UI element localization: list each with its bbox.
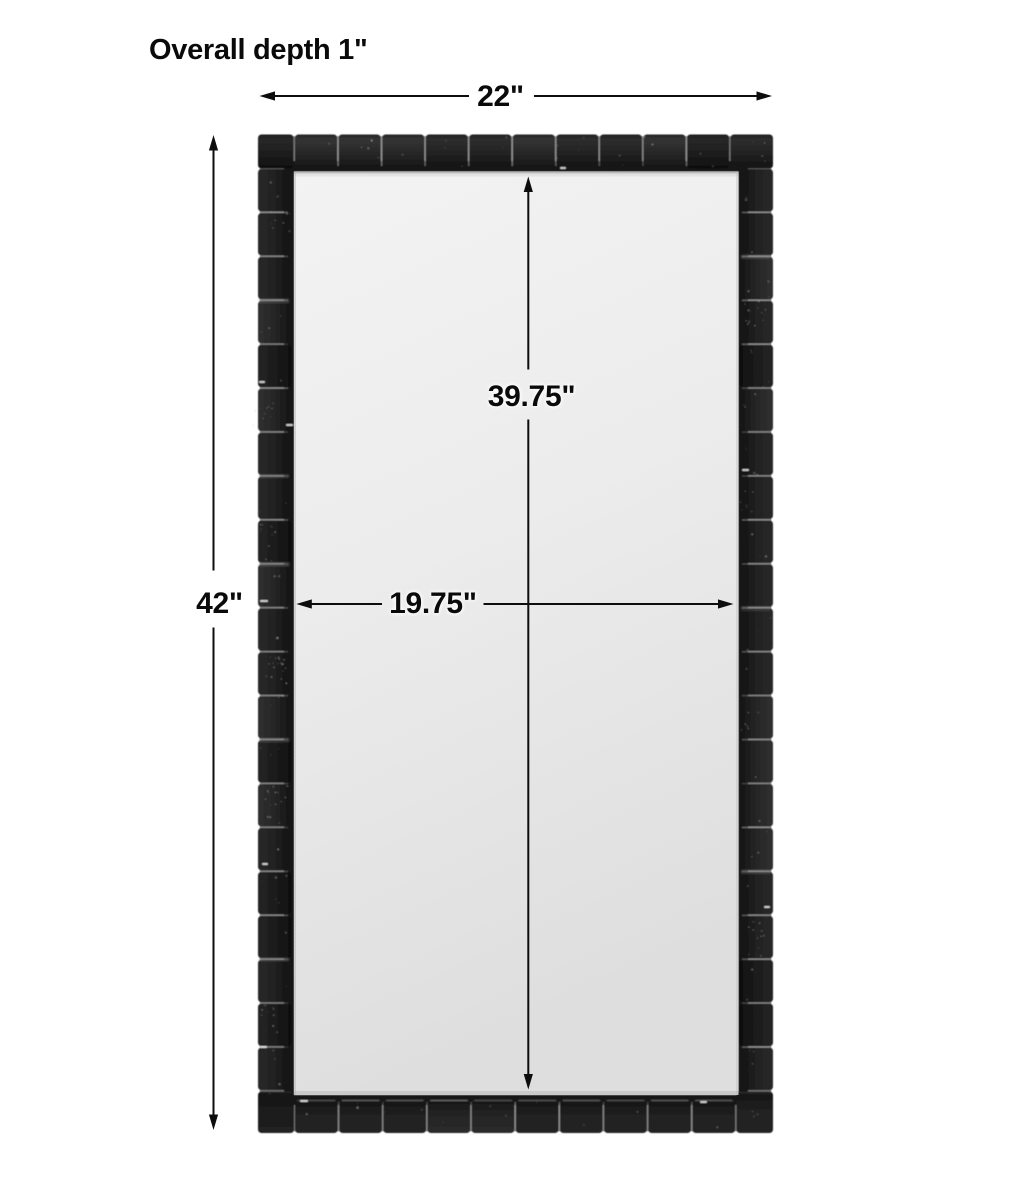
- svg-text:22": 22": [477, 80, 524, 113]
- svg-text:42": 42": [196, 587, 243, 620]
- svg-text:39.75": 39.75": [488, 380, 576, 413]
- svg-text:Overall depth 1": Overall depth 1": [149, 34, 367, 66]
- svg-text:19.75": 19.75": [389, 587, 477, 620]
